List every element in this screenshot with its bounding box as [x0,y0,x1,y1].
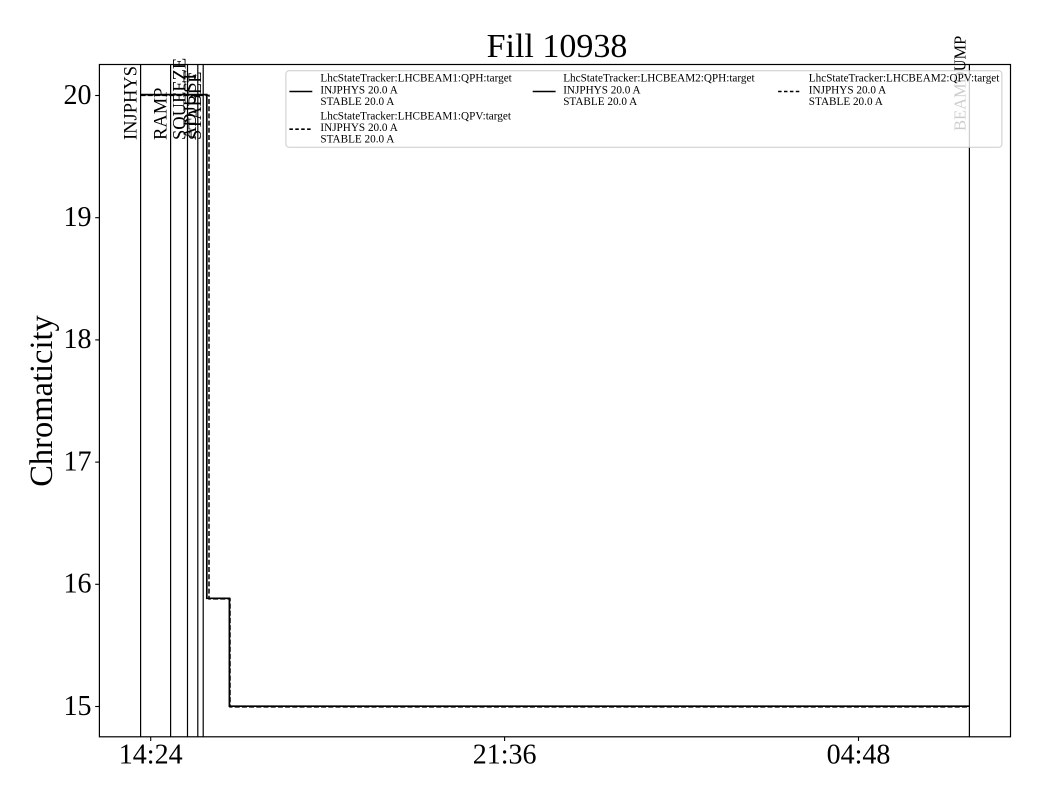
svg-text:21:36: 21:36 [473,740,537,771]
svg-text:LhcStateTracker:LHCBEAM1:QPH:t: LhcStateTracker:LHCBEAM1:QPH:target [320,73,512,85]
svg-text:STABLE 20.0 A: STABLE 20.0 A [320,133,394,145]
svg-text:Chromaticity: Chromaticity [24,315,60,487]
svg-text:INJPHYS: INJPHYS [122,66,142,140]
svg-text:STABLE 20.0 A: STABLE 20.0 A [809,96,883,108]
svg-text:16: 16 [64,569,92,600]
svg-text:RAMP: RAMP [152,88,172,140]
svg-text:Fill 10938: Fill 10938 [487,28,628,65]
svg-text:04:48: 04:48 [827,740,891,771]
svg-text:18: 18 [64,324,92,355]
svg-text:STABLE: STABLE [186,72,206,140]
svg-text:STABLE 20.0 A: STABLE 20.0 A [320,96,394,108]
svg-text:INJPHYS 20.0 A: INJPHYS 20.0 A [809,85,886,97]
svg-text:INJPHYS 20.0 A: INJPHYS 20.0 A [320,122,397,134]
svg-text:14:24: 14:24 [119,740,183,771]
svg-text:LhcStateTracker:LHCBEAM2:QPH:t: LhcStateTracker:LHCBEAM2:QPH:target [563,73,755,85]
svg-text:15: 15 [64,691,92,722]
svg-text:STABLE 20.0 A: STABLE 20.0 A [563,96,637,108]
svg-text:17: 17 [64,446,92,477]
svg-text:20: 20 [64,80,92,111]
svg-text:INJPHYS 20.0 A: INJPHYS 20.0 A [320,85,397,97]
svg-text:LhcStateTracker:LHCBEAM2:QPV:t: LhcStateTracker:LHCBEAM2:QPV:target [809,73,1000,85]
svg-text:19: 19 [64,202,92,233]
svg-text:INJPHYS 20.0 A: INJPHYS 20.0 A [563,85,640,97]
svg-text:LhcStateTracker:LHCBEAM1:QPV:t: LhcStateTracker:LHCBEAM1:QPV:target [320,110,511,122]
